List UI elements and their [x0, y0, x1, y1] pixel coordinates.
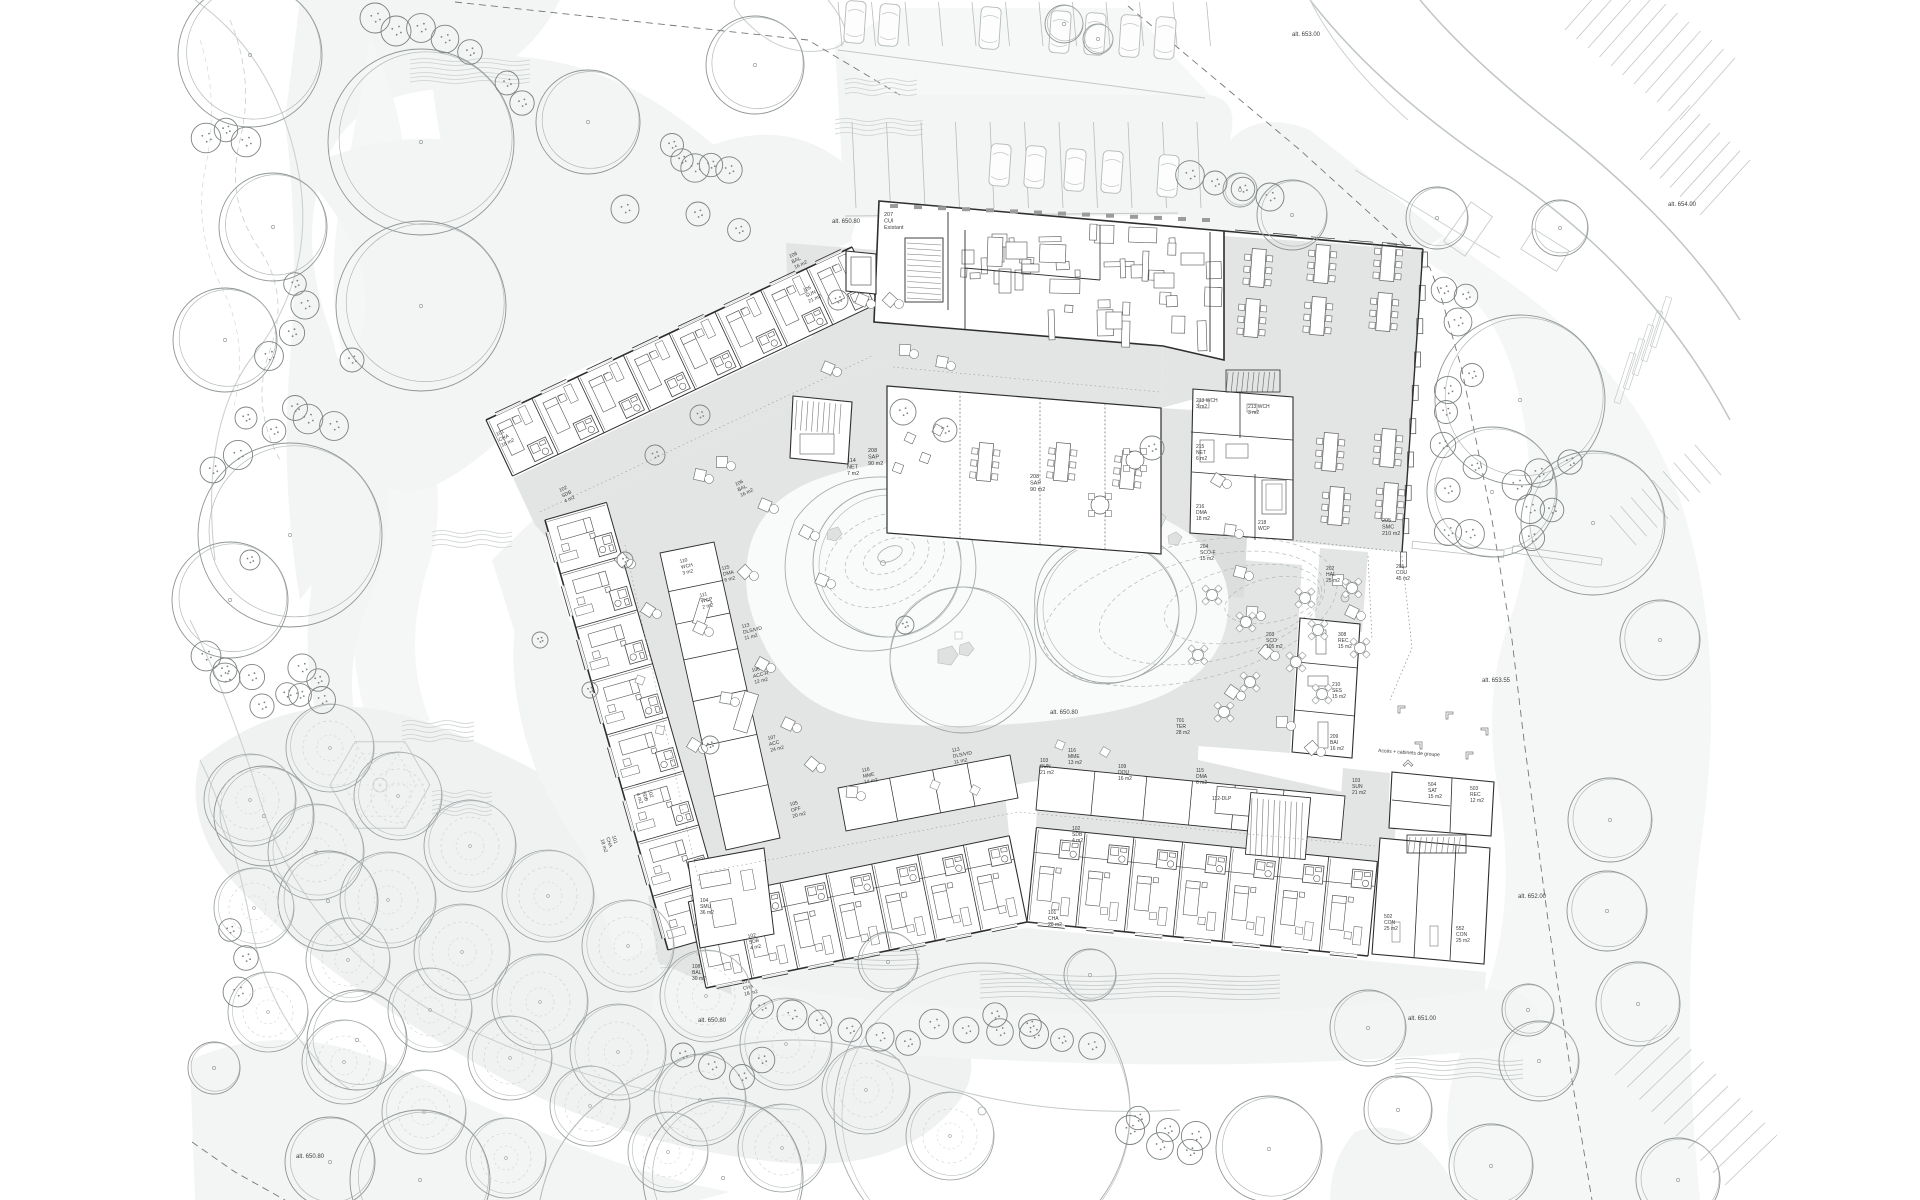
svg-text:alt. 653.55: alt. 653.55	[1482, 678, 1511, 684]
svg-text:112-DLP: 112-DLP	[1212, 796, 1232, 802]
svg-text:alt. 651.00: alt. 651.00	[1408, 1016, 1437, 1022]
svg-text:alt. 650.80: alt. 650.80	[698, 1018, 727, 1024]
svg-text:alt. 652.00: alt. 652.00	[1518, 894, 1547, 900]
svg-text:alt. 653.00: alt. 653.00	[1292, 32, 1321, 38]
svg-text:alt. 650.80: alt. 650.80	[296, 1154, 325, 1160]
svg-text:alt. 654.00: alt. 654.00	[1668, 202, 1697, 208]
svg-text:alt. 650.80: alt. 650.80	[832, 219, 861, 225]
svg-text:alt. 650.80: alt. 650.80	[1050, 710, 1079, 716]
svg-text:215 NET 6 m2: 215 NET 6 m2	[1196, 444, 1207, 462]
